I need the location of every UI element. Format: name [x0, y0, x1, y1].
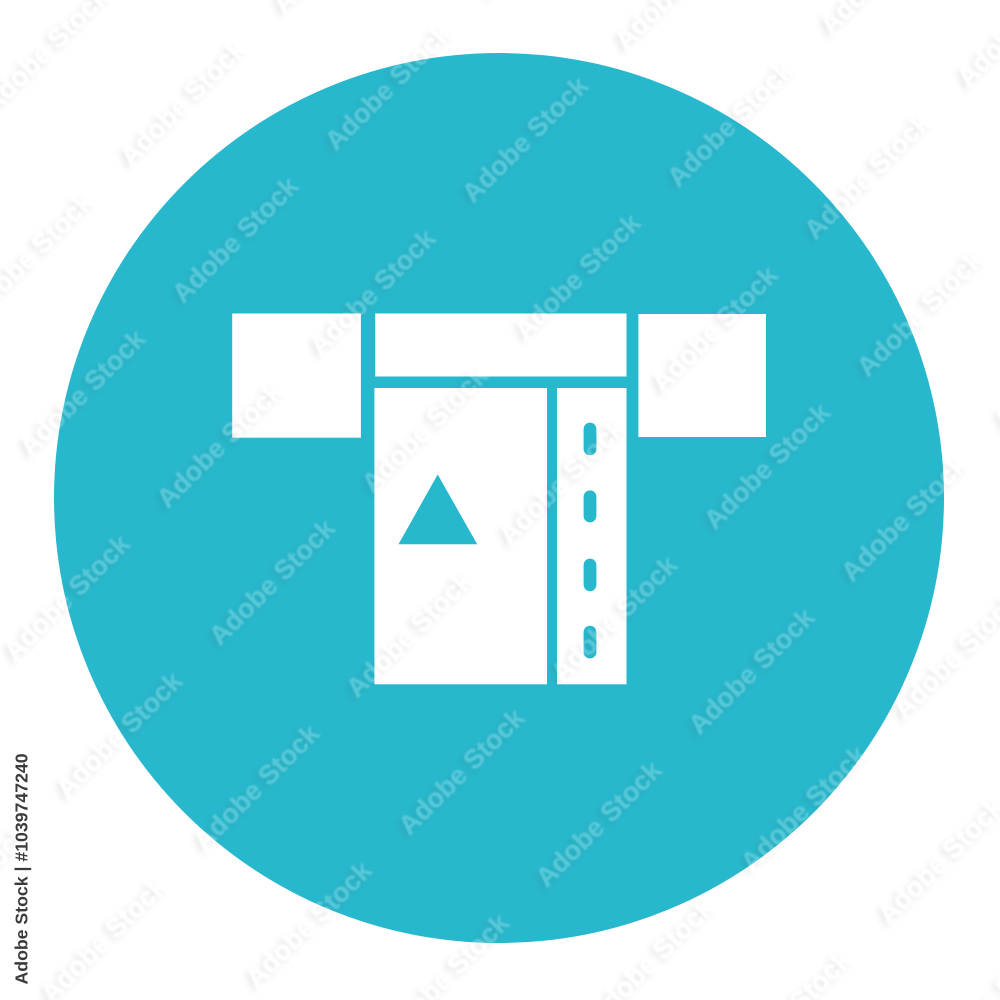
svg-text:Adobe Stock | #1039747240: Adobe Stock | #1039747240 — [12, 753, 32, 984]
